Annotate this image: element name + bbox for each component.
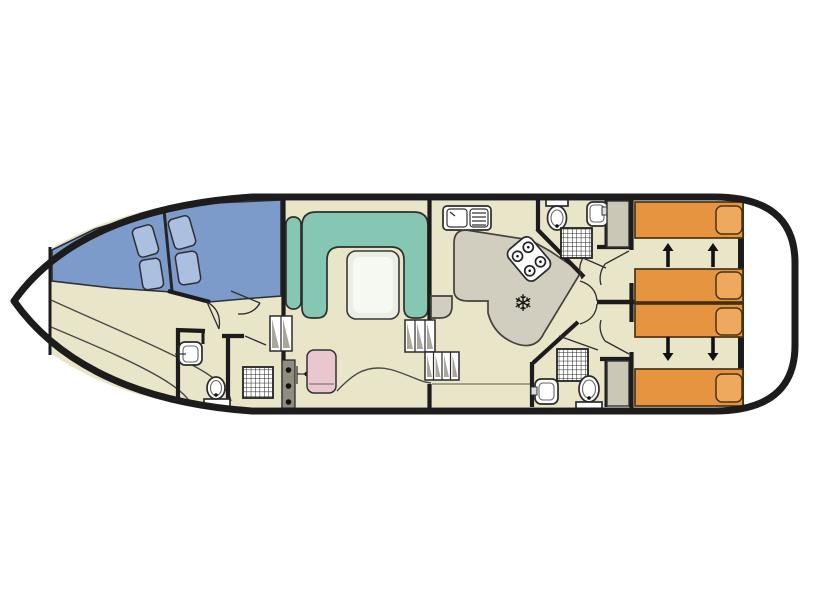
boat-floorplan: ❄ [0,0,816,612]
bed-pillow [716,374,742,402]
toilet-flush-dot [214,393,218,397]
console-knob [286,399,292,405]
console-knob [286,383,292,389]
drainboard [470,209,488,227]
toilet-flush-dot [587,396,591,400]
console-knob [286,367,292,373]
shower-grid-icon [561,228,592,258]
bed-pillow [716,206,742,234]
bed-pillow [716,272,742,299]
wardrobe [607,361,629,406]
fridge-snowflake-icon: ❄ [513,291,532,317]
faucet-icon [602,207,607,215]
faucet-icon [531,387,537,395]
helm-seat [307,350,336,393]
pillow [139,258,164,291]
wardrobe [607,201,629,247]
shower-grid-icon [557,349,588,381]
toilet-flush-dot [555,224,559,228]
galley-sink-bowl [447,209,467,227]
galley-cabinet [431,296,452,318]
floorplan-canvas: ❄ [0,0,816,612]
pillow [175,250,202,285]
bathroom-wall [176,330,205,331]
shower-grid-icon [243,367,273,398]
bed-pillow [716,308,742,335]
saloon-table-top [353,257,393,313]
sofa-cushion [286,217,301,309]
